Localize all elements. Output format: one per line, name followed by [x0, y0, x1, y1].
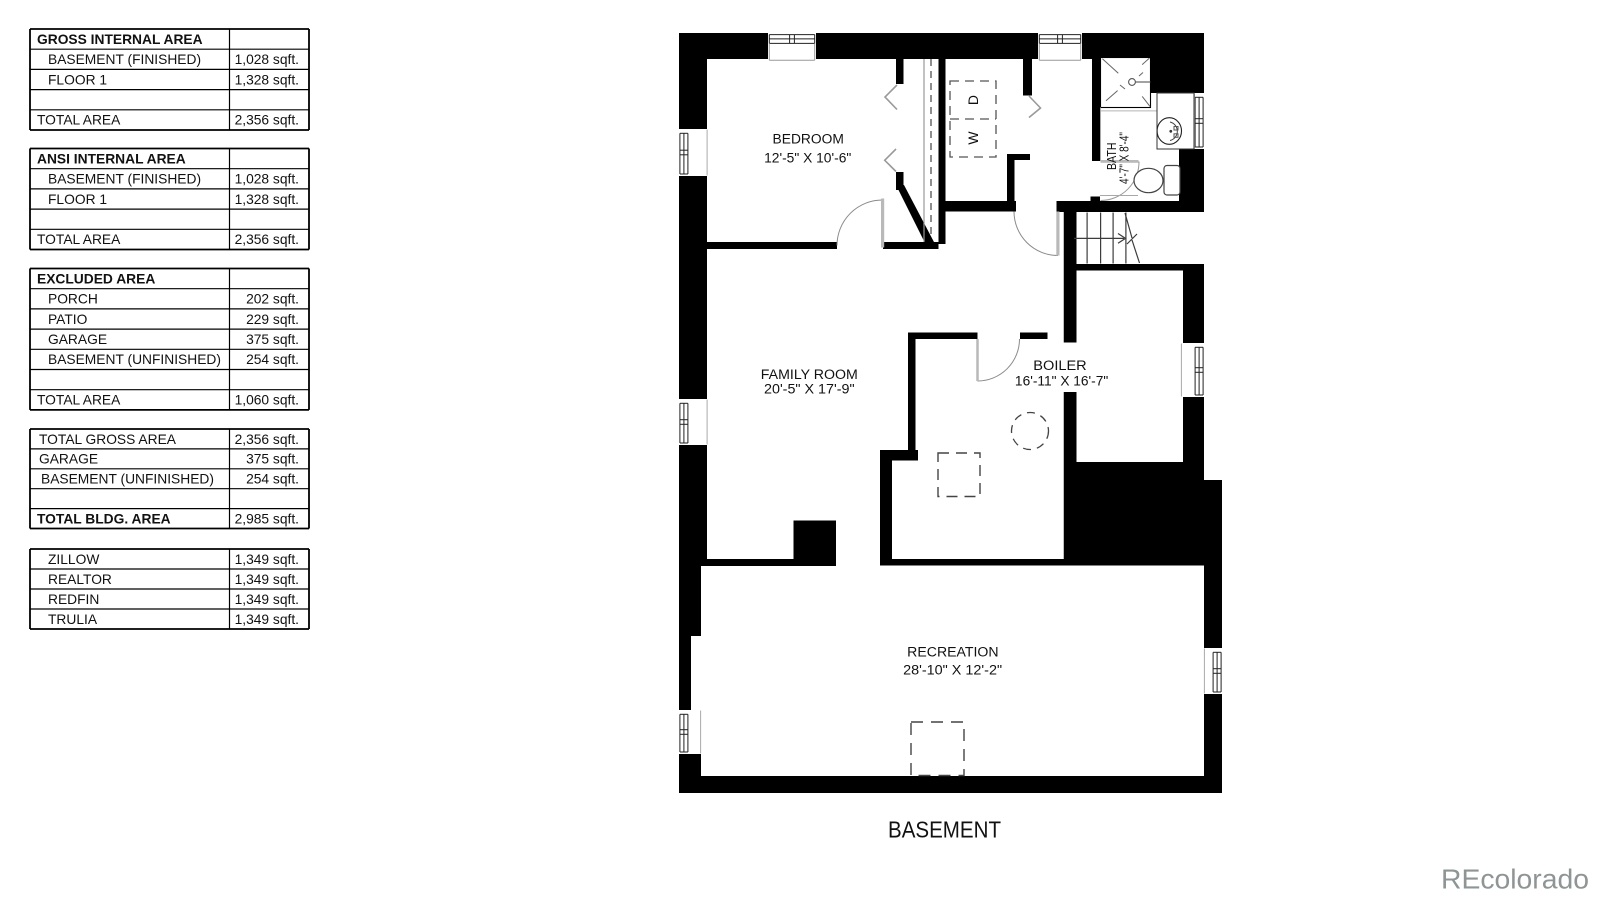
svg-text:375 sqft.: 375 sqft.	[246, 452, 299, 467]
svg-text:2,356 sqft.: 2,356 sqft.	[235, 432, 299, 447]
svg-text:BASEMENT (UNFINISHED): BASEMENT (UNFINISHED)	[48, 352, 221, 367]
svg-text:GARAGE: GARAGE	[39, 452, 98, 467]
svg-text:PATIO: PATIO	[48, 312, 88, 327]
svg-text:375 sqft.: 375 sqft.	[246, 332, 299, 347]
svg-text:20'-5" X 17'-9": 20'-5" X 17'-9"	[764, 381, 855, 396]
svg-text:FLOOR 1: FLOOR 1	[48, 72, 107, 87]
svg-text:TOTAL AREA: TOTAL AREA	[37, 232, 121, 247]
svg-text:GROSS INTERNAL AREA: GROSS INTERNAL AREA	[37, 32, 203, 47]
svg-text:EXCLUDED AREA: EXCLUDED AREA	[37, 271, 155, 286]
svg-text:1,028 sqft.: 1,028 sqft.	[235, 172, 299, 187]
svg-text:BASEMENT (FINISHED): BASEMENT (FINISHED)	[48, 172, 201, 187]
svg-text:4'-7" X 8'-4": 4'-7" X 8'-4"	[1117, 132, 1131, 184]
svg-text:2,356 sqft.: 2,356 sqft.	[235, 232, 299, 247]
svg-text:254 sqft.: 254 sqft.	[246, 352, 299, 367]
svg-text:1,328 sqft.: 1,328 sqft.	[235, 72, 299, 87]
svg-text:TOTAL AREA: TOTAL AREA	[37, 393, 121, 408]
svg-text:2,356 sqft.: 2,356 sqft.	[235, 113, 299, 128]
svg-text:229 sqft.: 229 sqft.	[246, 312, 299, 327]
svg-text:TOTAL BLDG. AREA: TOTAL BLDG. AREA	[37, 511, 171, 526]
svg-text:12'-5" X 10'-6": 12'-5" X 10'-6"	[764, 150, 851, 165]
svg-text:1,349 sqft.: 1,349 sqft.	[235, 612, 299, 627]
svg-text:ZILLOW: ZILLOW	[48, 552, 99, 567]
svg-text:D: D	[965, 95, 981, 105]
svg-text:1,349 sqft.: 1,349 sqft.	[235, 592, 299, 607]
svg-text:BOILER: BOILER	[1033, 358, 1087, 373]
svg-text:REDFIN: REDFIN	[48, 592, 99, 607]
svg-text:FLOOR 1: FLOOR 1	[48, 192, 107, 207]
svg-text:W: W	[965, 131, 981, 145]
svg-text:RECREATION: RECREATION	[907, 645, 998, 660]
svg-text:1,349 sqft.: 1,349 sqft.	[235, 552, 299, 567]
svg-text:TOTAL GROSS AREA: TOTAL GROSS AREA	[39, 432, 177, 447]
svg-text:REALTOR: REALTOR	[48, 572, 112, 587]
svg-text:254 sqft.: 254 sqft.	[246, 472, 299, 487]
svg-text:202 sqft.: 202 sqft.	[246, 292, 299, 307]
svg-text:16'-11" X 16'-7": 16'-11" X 16'-7"	[1015, 373, 1109, 388]
svg-text:TOTAL AREA: TOTAL AREA	[37, 113, 121, 128]
svg-text:PORCH: PORCH	[48, 292, 98, 307]
svg-text:REcolorado: REcolorado	[1441, 864, 1589, 895]
svg-text:BASEMENT (FINISHED): BASEMENT (FINISHED)	[48, 52, 201, 67]
svg-text:FAMILY ROOM: FAMILY ROOM	[761, 367, 858, 382]
svg-text:2,985 sqft.: 2,985 sqft.	[235, 511, 299, 526]
svg-text:BEDROOM: BEDROOM	[773, 132, 844, 147]
svg-text:28'-10" X 12'-2": 28'-10" X 12'-2"	[903, 662, 1002, 677]
svg-text:BASEMENT: BASEMENT	[888, 817, 1001, 843]
svg-text:GARAGE: GARAGE	[48, 332, 107, 347]
svg-text:BASEMENT (UNFINISHED): BASEMENT (UNFINISHED)	[41, 472, 214, 487]
svg-text:1,060 sqft.: 1,060 sqft.	[235, 393, 299, 408]
svg-text:1,349 sqft.: 1,349 sqft.	[235, 572, 299, 587]
svg-text:1,328 sqft.: 1,328 sqft.	[235, 192, 299, 207]
svg-text:ANSI INTERNAL AREA: ANSI INTERNAL AREA	[37, 151, 186, 166]
svg-text:TRULIA: TRULIA	[48, 612, 98, 627]
svg-text:1,028 sqft.: 1,028 sqft.	[235, 52, 299, 67]
